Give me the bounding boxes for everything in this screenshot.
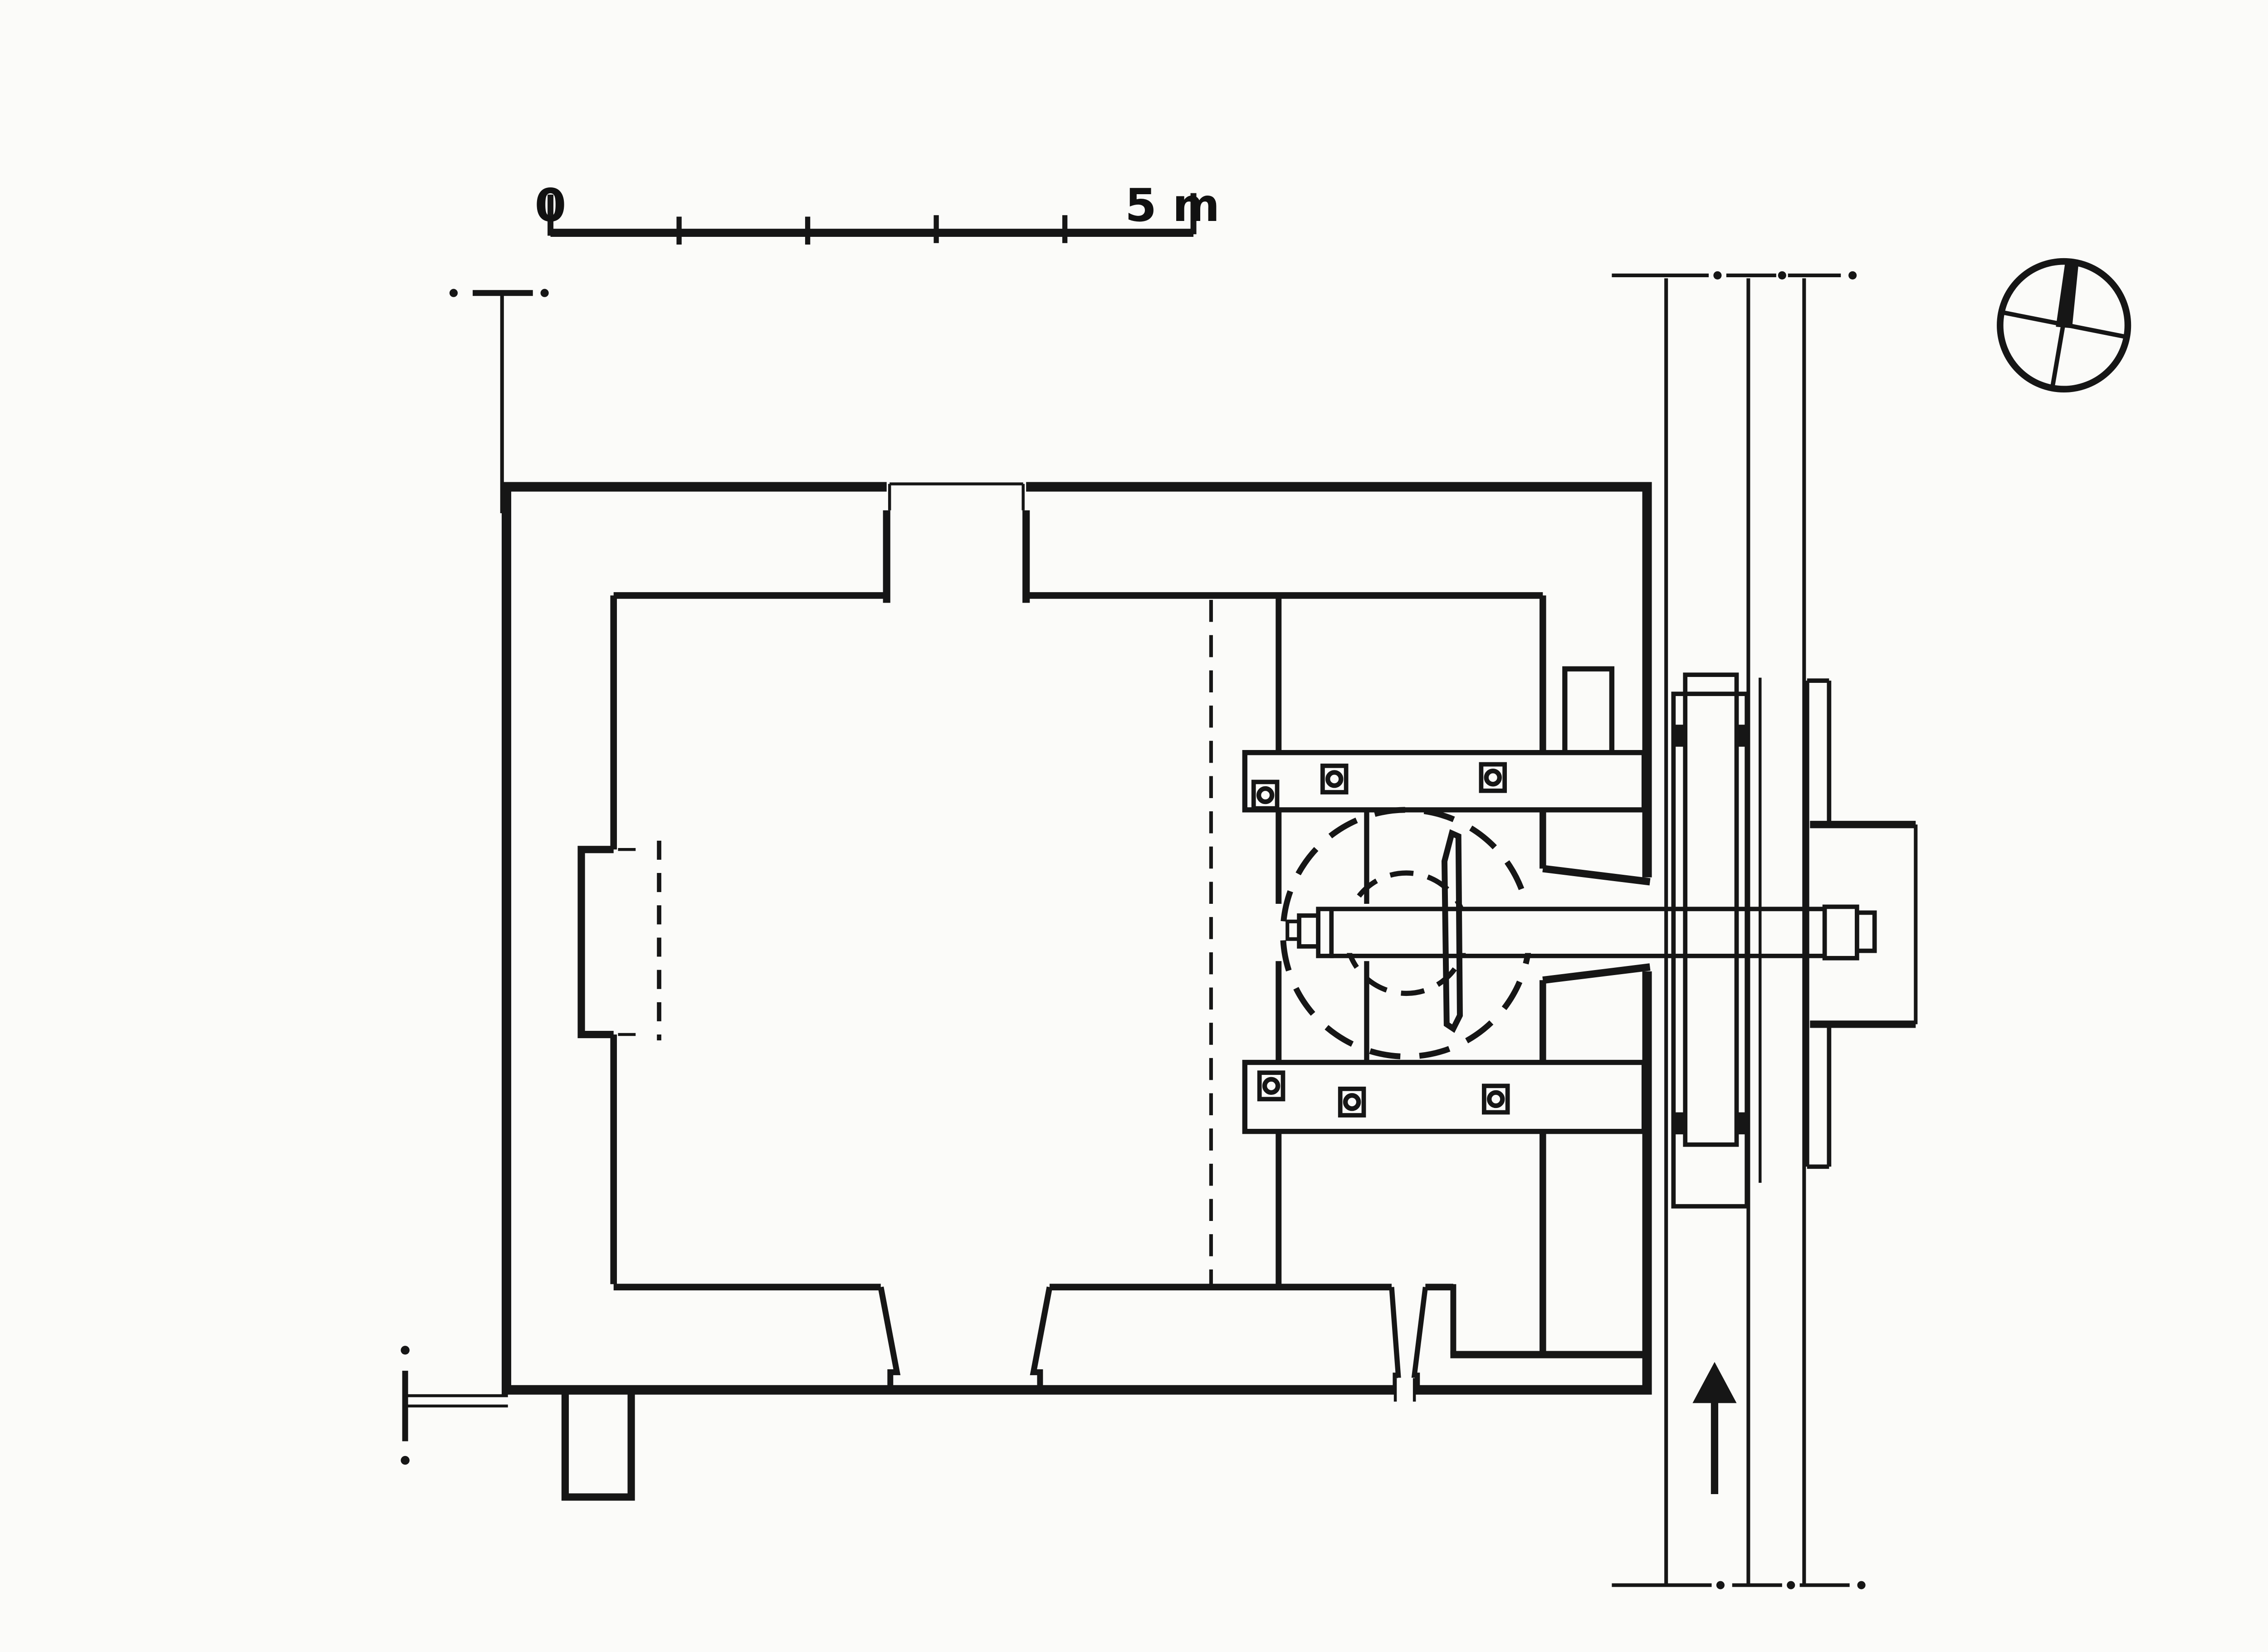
bearing-pad xyxy=(1735,1113,1745,1135)
mill-plan-drawing: 0 5 m xyxy=(0,0,2268,1652)
survey-dot xyxy=(541,289,549,297)
paper-background xyxy=(0,46,2268,1606)
survey-dot xyxy=(401,1346,409,1354)
bearing-pad xyxy=(1735,725,1745,747)
scale-zero-label: 0 xyxy=(535,179,567,232)
top-bearing-beam xyxy=(1245,753,1644,810)
survey-dot xyxy=(401,1456,409,1465)
scale-end-label: 5 m xyxy=(1125,179,1220,232)
scanned-plan-sheet: 0 5 m xyxy=(0,0,2268,1652)
axle xyxy=(1287,909,1824,956)
drain-slot xyxy=(1395,1378,1414,1402)
bearing-pad xyxy=(1675,725,1686,747)
bearing-pad xyxy=(1675,1113,1686,1135)
axle-body-mask xyxy=(1330,911,1825,953)
survey-dot xyxy=(450,289,458,297)
